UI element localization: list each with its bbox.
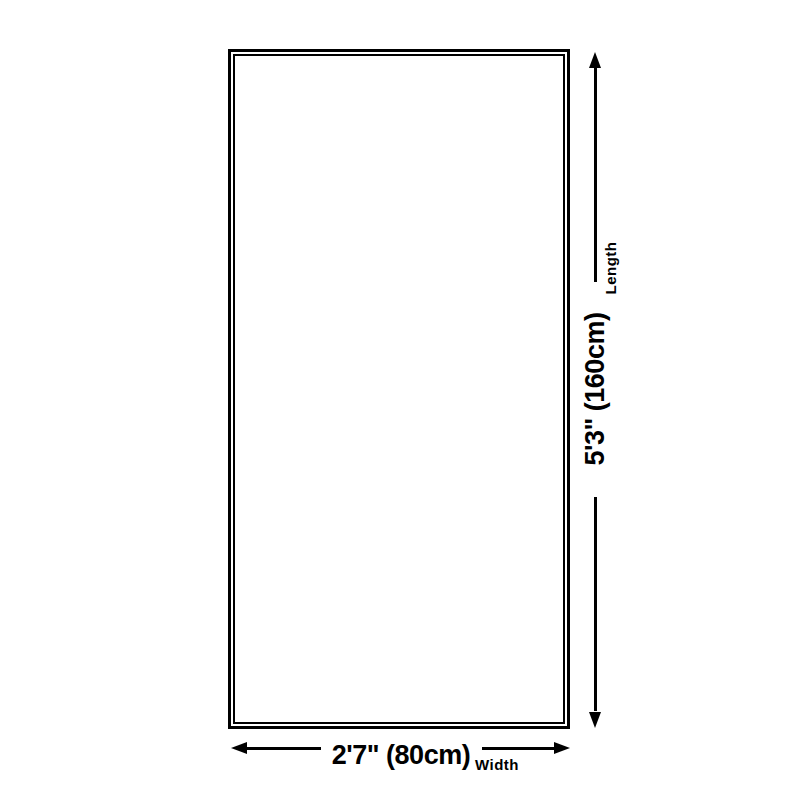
length-label: Length	[602, 242, 619, 295]
rug-outline-inner-border	[233, 54, 565, 724]
width-dimension-line-right	[482, 747, 555, 750]
length-dimension-line-top	[594, 67, 597, 282]
rug-size-diagram: Length 5'3" (160cm) 2'7" (80cm) Width	[0, 0, 800, 800]
arrow-left-icon	[231, 742, 247, 754]
arrow-down-icon	[589, 712, 601, 728]
arrow-right-icon	[554, 742, 570, 754]
width-dimension-line-left	[247, 747, 321, 750]
length-dimension-line-bottom	[594, 497, 597, 711]
arrow-up-icon	[589, 52, 601, 68]
width-label: Width	[475, 756, 519, 773]
length-value: 5'3" (160cm)	[580, 313, 611, 466]
width-value: 2'7" (80cm)	[332, 740, 470, 771]
rug-outline	[228, 49, 570, 729]
